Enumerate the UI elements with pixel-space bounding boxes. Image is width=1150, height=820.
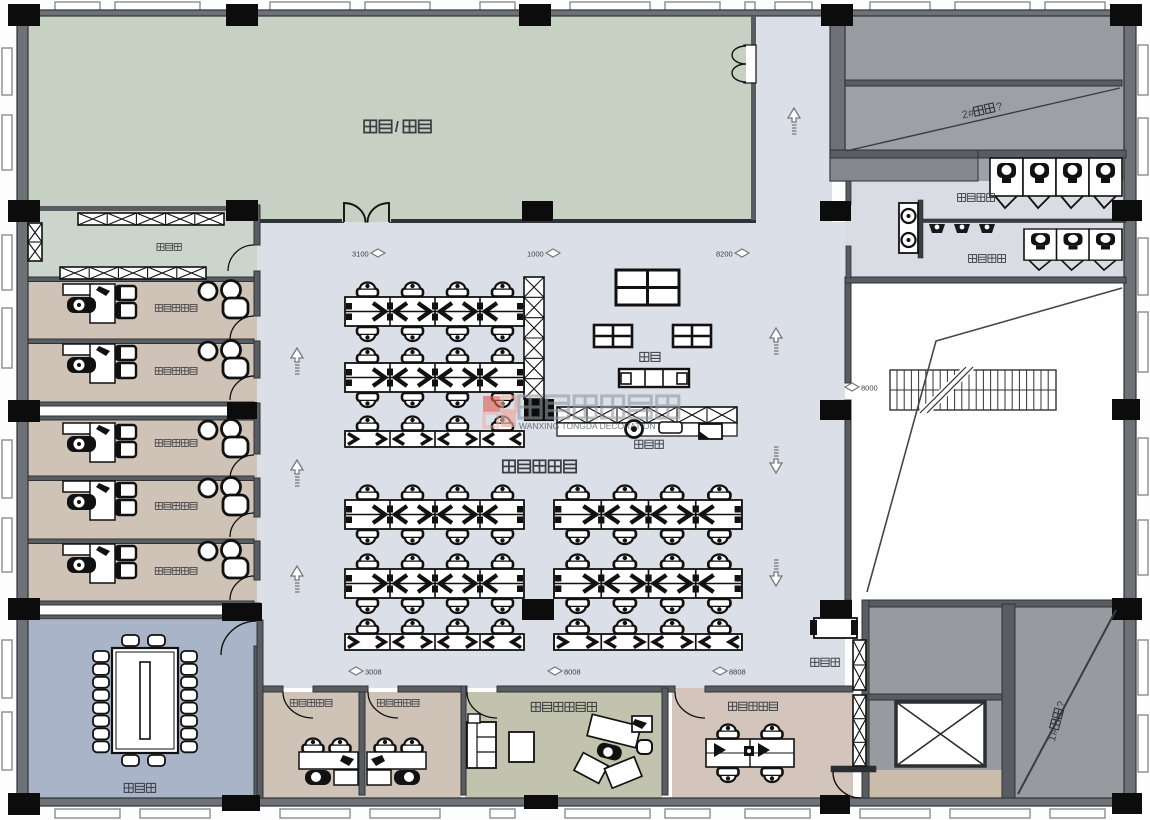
svg-text:WANXING TONGDA DECORATION: WANXING TONGDA DECORATION xyxy=(519,421,656,431)
svg-text:1000: 1000 xyxy=(527,250,544,259)
svg-text:8200: 8200 xyxy=(716,250,733,259)
svg-text:8000: 8000 xyxy=(861,384,878,393)
svg-text:3008: 3008 xyxy=(365,668,382,677)
svg-text:8008: 8008 xyxy=(564,668,581,677)
svg-text:8808: 8808 xyxy=(729,668,746,677)
svg-text:3100: 3100 xyxy=(352,250,369,259)
